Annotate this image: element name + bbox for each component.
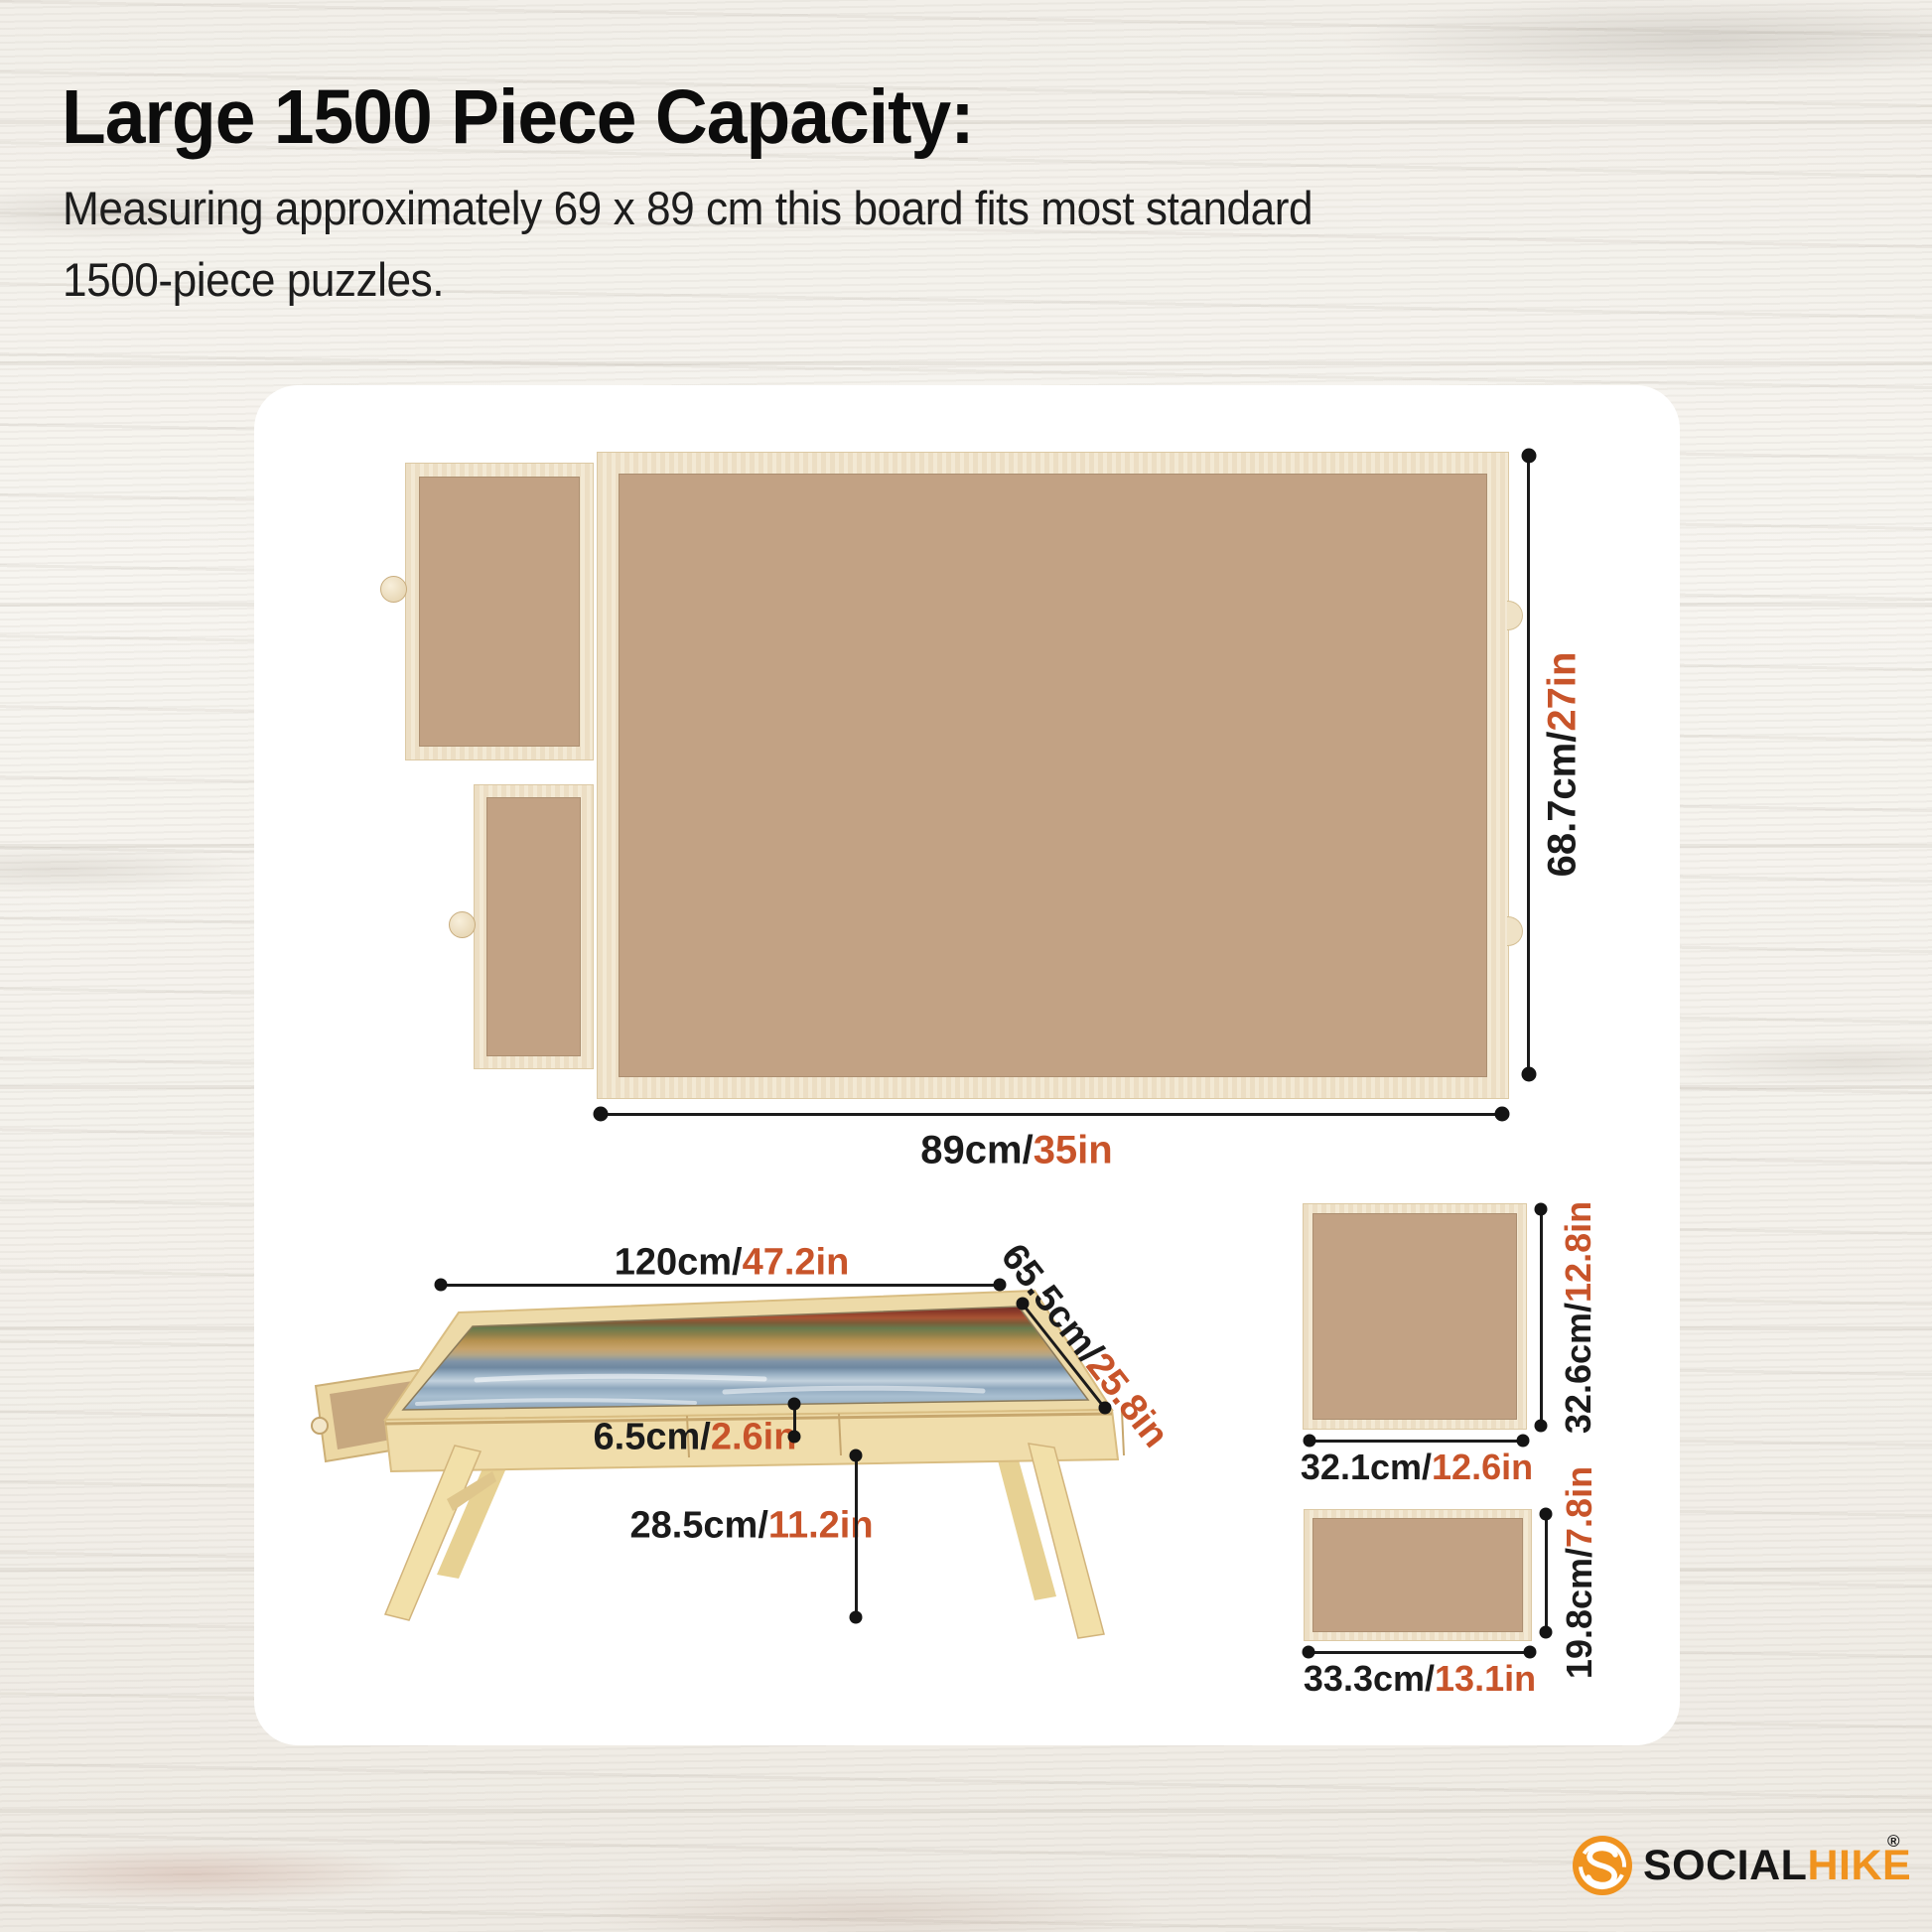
table-tray-knob	[312, 1418, 328, 1434]
board-width-dimension-line	[599, 1113, 1503, 1116]
small-board-width-line	[1308, 1651, 1531, 1654]
table-length-label: 120cm/47.2in	[615, 1242, 850, 1285]
square-board-height-label: 32.6cm/12.8in	[1558, 1201, 1599, 1434]
dimension-dot	[1522, 1067, 1537, 1082]
small-board-height-label: 19.8cm/7.8in	[1559, 1466, 1600, 1679]
main-puzzle-board	[597, 452, 1509, 1099]
infographic-root: Large 1500 Piece Capacity: Measuring app…	[0, 0, 1932, 1932]
square-board-width-line	[1309, 1440, 1524, 1443]
board-height-label: 68.7cm/27in	[1541, 652, 1586, 878]
brand-swirl-icon	[1572, 1835, 1633, 1896]
board-height-dimension-line	[1527, 455, 1530, 1075]
dimension-dot	[1540, 1626, 1553, 1639]
page-title: Large 1500 Piece Capacity:	[62, 73, 974, 162]
sorting-drawer-1	[405, 463, 594, 760]
square-board-height-line	[1540, 1208, 1543, 1427]
drawer-1-surface	[419, 477, 580, 747]
dimension-dot	[994, 1279, 1007, 1292]
dimension-dot	[594, 1107, 609, 1122]
dimension-dot	[1517, 1435, 1530, 1448]
table-length-dimension-line	[440, 1284, 1001, 1287]
brand-name-primary: SOCIAL	[1643, 1842, 1807, 1889]
dimension-dot	[850, 1611, 863, 1624]
square-board-surface	[1312, 1213, 1517, 1420]
puzzle-table-illustration	[298, 1251, 1132, 1668]
dimension-dot	[788, 1431, 801, 1444]
drawer-2-knob	[449, 911, 476, 938]
dimension-dot	[1495, 1107, 1510, 1122]
board-width-label: 89cm/35in	[920, 1129, 1112, 1173]
drawer-1-knob	[380, 576, 407, 603]
table-leg-height-label: 28.5cm/11.2in	[629, 1505, 873, 1548]
dimension-dot	[788, 1398, 801, 1411]
brand-wordmark: SOCIALHIKE	[1643, 1842, 1911, 1890]
dimension-dot	[1522, 449, 1537, 464]
registered-trademark-symbol: ®	[1887, 1832, 1900, 1852]
small-board-width-label: 33.3cm/13.1in	[1304, 1658, 1536, 1700]
small-tray-board	[1304, 1509, 1532, 1641]
dimension-dot	[850, 1449, 863, 1462]
dimension-dot	[1303, 1646, 1315, 1659]
dimension-dot	[1524, 1646, 1537, 1659]
dimension-dot	[1535, 1203, 1548, 1216]
small-board-surface	[1312, 1518, 1523, 1632]
table-drawer-height-label: 6.5cm/2.6in	[594, 1417, 797, 1459]
small-board-height-line	[1545, 1513, 1548, 1632]
dimension-dot	[1304, 1435, 1316, 1448]
square-cover-board	[1303, 1203, 1527, 1430]
dimension-dot	[435, 1279, 448, 1292]
main-board-surface	[619, 474, 1487, 1077]
dimension-dot	[1535, 1420, 1548, 1433]
square-board-width-label: 32.1cm/12.6in	[1301, 1447, 1533, 1488]
dimension-dot	[1540, 1508, 1553, 1521]
leg-height-dimension-line	[855, 1454, 858, 1618]
page-subtitle-line1: Measuring approximately 69 x 89 cm this …	[63, 181, 1312, 235]
sorting-drawer-2	[474, 784, 594, 1069]
page-subtitle-line2: 1500-piece puzzles.	[63, 252, 444, 307]
drawer-2-surface	[486, 797, 581, 1056]
